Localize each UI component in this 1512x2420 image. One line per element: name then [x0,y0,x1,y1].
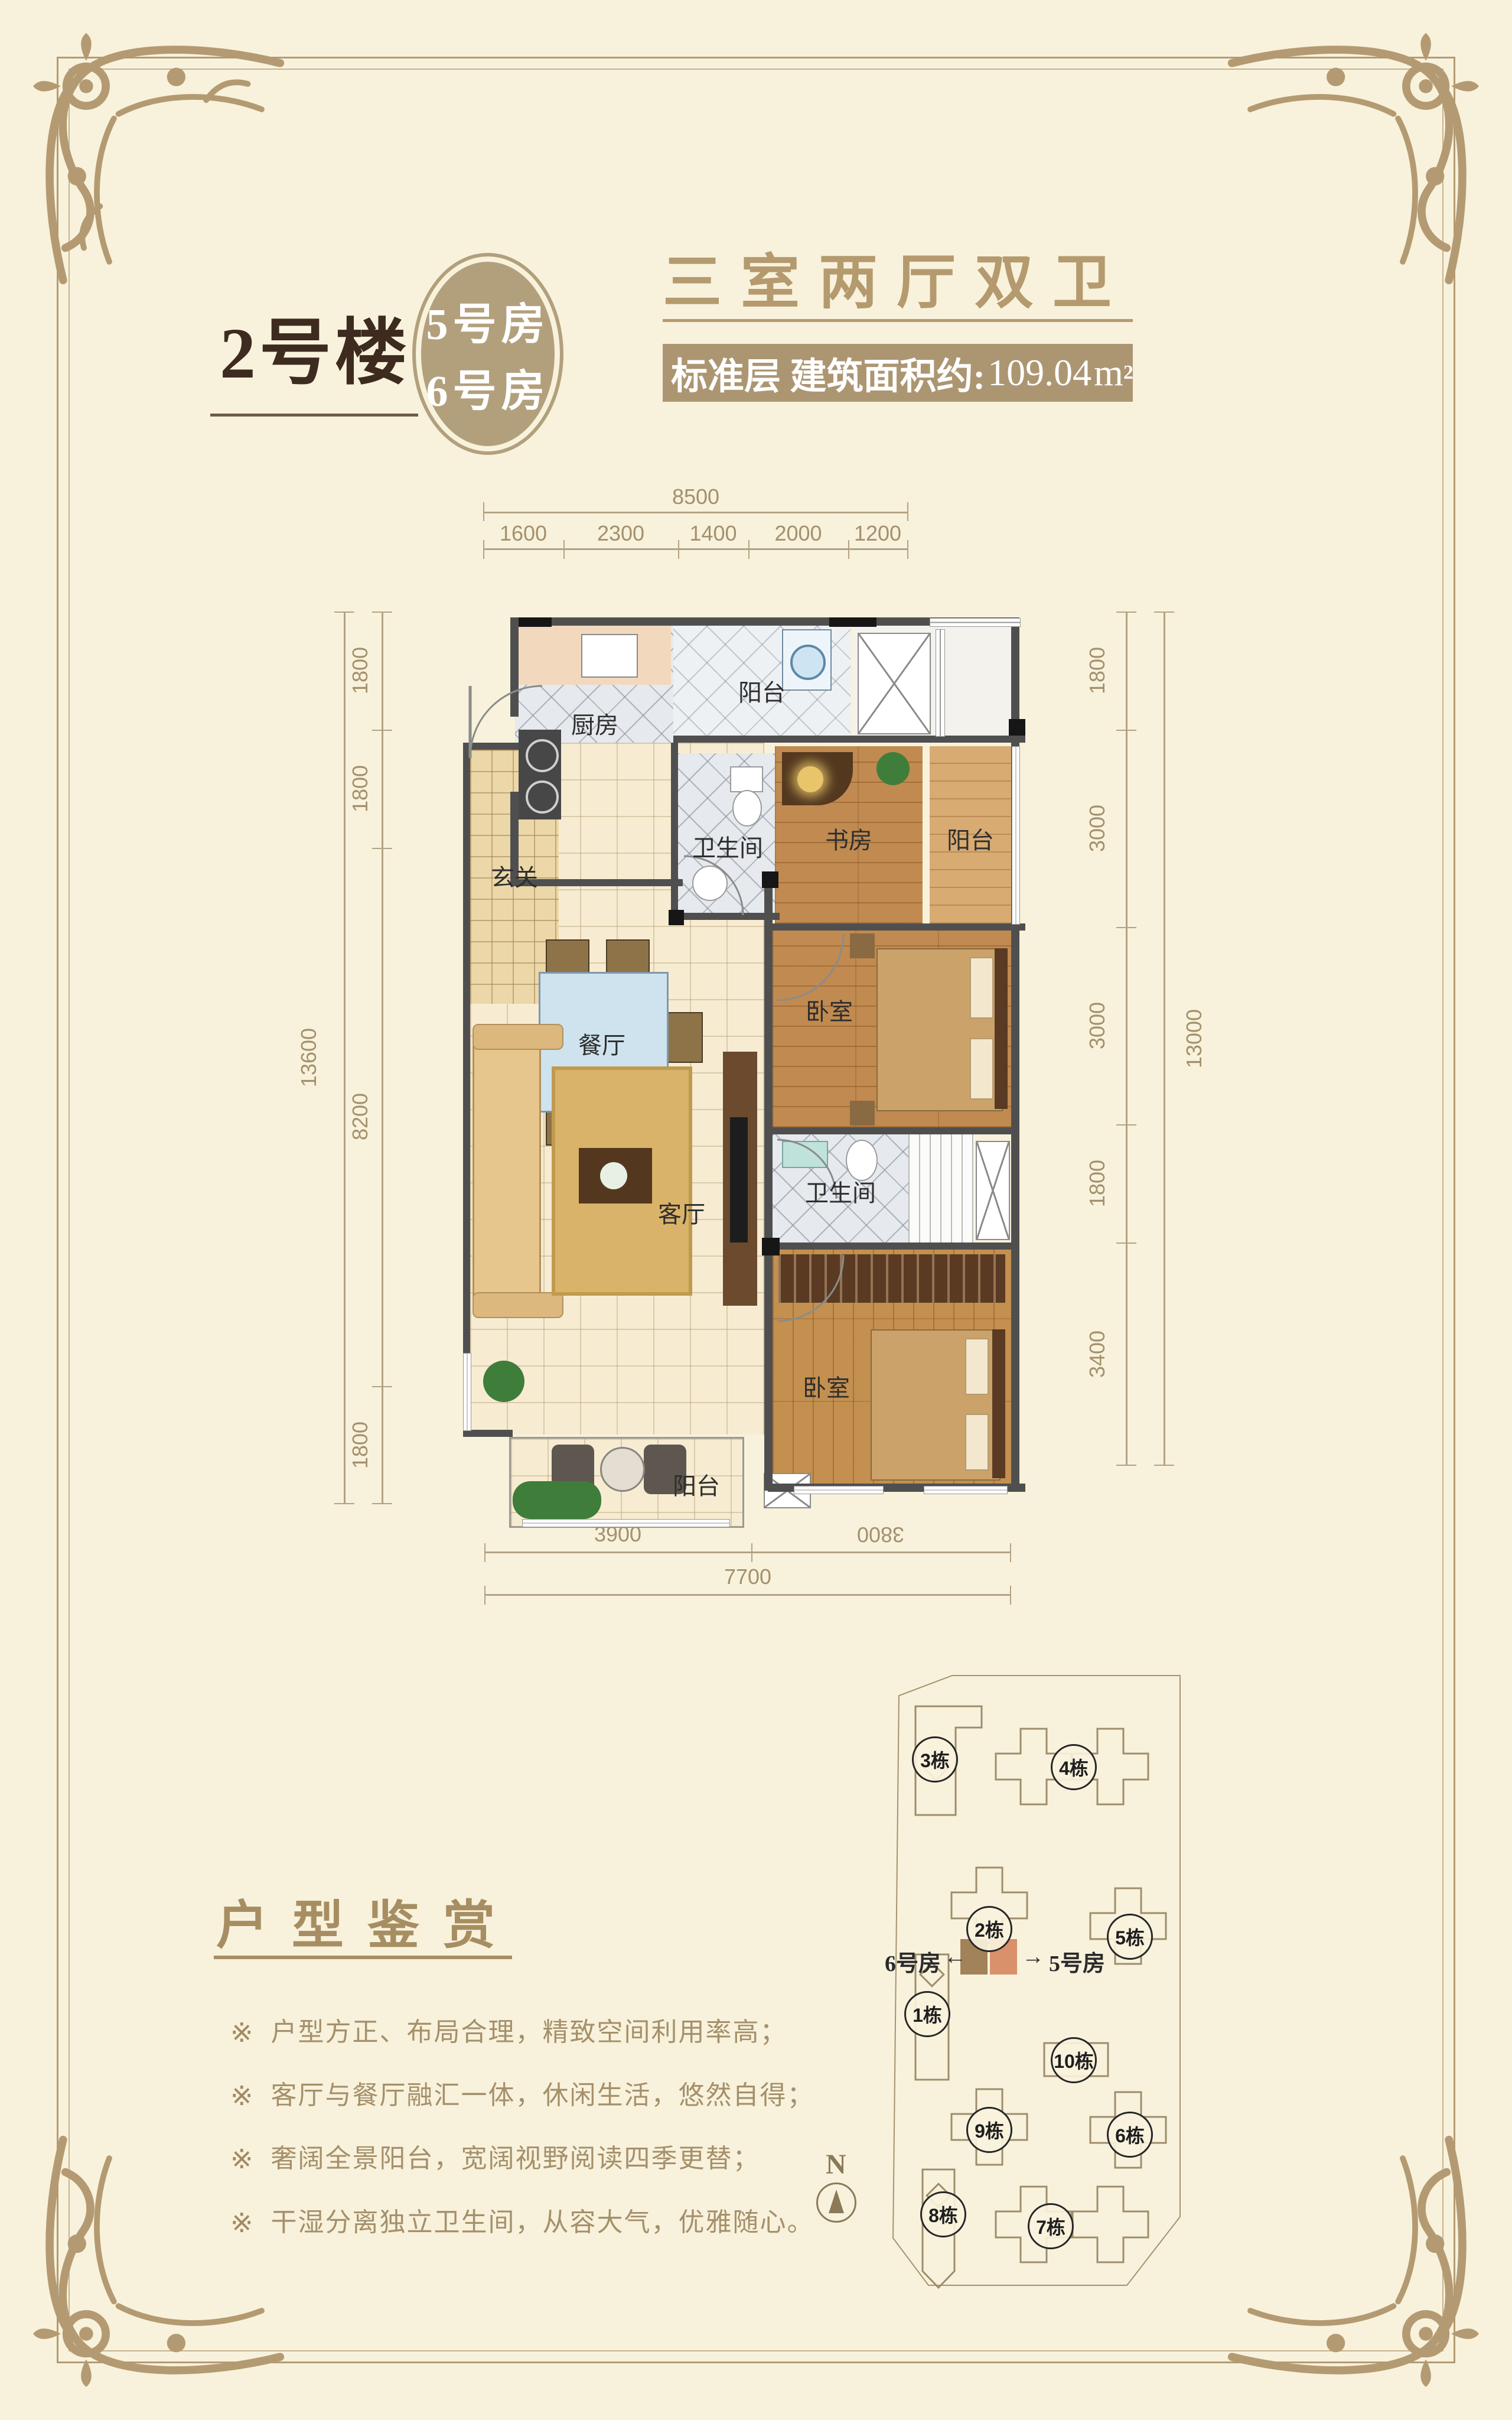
dim-right-seg: 3400 [1084,1310,1110,1398]
dim-tick [748,540,750,559]
site-building-7: 7栋 [1028,2203,1074,2249]
dim-tick [678,540,679,559]
dim-right-seg: 1800 [1084,1139,1110,1228]
room-label-balcony-top: 阳台 [673,674,850,708]
site-building-2: 2栋 [966,1906,1012,1952]
site-building-9: 9栋 [966,2107,1012,2153]
unit-number-badge: 5号房 6号房 [412,253,563,455]
plant [483,1361,524,1402]
dining-chair [606,939,650,976]
dim-top-seg: 2300 [563,521,678,546]
site-building-3: 3栋 [912,1736,958,1783]
dim-tick [1116,611,1136,613]
dim-line [484,1594,1011,1596]
dim-tick [334,611,354,613]
dim-tick [372,848,392,849]
kitchen-sink [581,634,638,678]
tv [730,1117,748,1242]
highlight-text: 奢阔全景阳台，宽阔视野阅读四季更替； [271,2146,760,2172]
dim-tick [334,1503,354,1504]
room-label-entry: 玄关 [476,858,553,893]
highlight-text: 户型方正、布局合理，精致空间利用率高； [271,2019,787,2045]
room-label-dining: 餐厅 [539,1026,665,1061]
pillow [970,957,993,1019]
room-label-study-balcony: 阳台 [930,821,1011,856]
dim-line [483,512,908,513]
room-label-balcony-bottom: 阳台 [652,1467,741,1501]
site-building-6: 6栋 [1107,2112,1153,2158]
unit-6-label: 6号房 [885,1945,941,1977]
nightstand [850,933,875,958]
dim-tick [1116,730,1136,731]
floorplan-poster: { "colors": { "background": "#f8f2dc", "… [0,0,1512,2420]
dim-bottom-seg: 3800 [751,1522,1010,1547]
bullet-icon: ※ [230,2146,253,2173]
badge-unit-6: 6号房 [426,356,550,419]
site-building-1: 1栋 [904,1991,950,2037]
dim-tick [907,502,908,521]
dim-left-seg: 8200 [347,1072,373,1161]
dim-line [382,611,383,1504]
room-label-study: 书房 [775,821,923,856]
badge-unit-5: 5号房 [426,289,550,352]
compass-arrow-icon [829,2190,844,2213]
dim-tick [1116,927,1136,928]
dining-chair [666,1012,703,1063]
door-arc [775,1253,846,1323]
toilet [732,790,762,827]
title-divider [663,319,1133,322]
dim-line [1164,611,1165,1466]
dim-line [1126,611,1128,1466]
dim-right-seg: 1800 [1084,626,1110,715]
dim-line [484,1551,1011,1553]
corner-flourish-icon [33,33,287,287]
site-map: 3栋 4栋 2栋 5栋 1栋 10栋 9栋 6栋 8栋 7栋 6号房 ← → 5… [856,1672,1211,2310]
wardrobe [908,1134,975,1242]
floor-plan: 厨房 阳台 玄关 卫生间 书房 阳台 餐厅 卧室 客厅 卫生间 卧室 阳台 [463,617,1025,1539]
sofa [472,1038,541,1305]
compass-icon [816,2182,856,2223]
plant [876,752,910,785]
dim-tick [1154,611,1174,613]
sofa-arm [472,1292,563,1318]
highlight-text: 干湿分离独立卫生间，从容大气，优雅随心。 [271,2210,814,2236]
highlights-underline [214,1956,512,1959]
compass-north-label: N [826,2148,846,2181]
dim-top-seg: 2000 [748,521,848,546]
building-title-underline [210,414,418,417]
highlight-item: ※ 干湿分离独立卫生间，从容大气，优雅随心。 [230,2210,814,2237]
dim-right-seg: 3000 [1084,784,1110,873]
table-decor [600,1162,627,1189]
highlight-text: 客厅与餐厅融汇一体，休闲生活，悠然自得； [271,2083,814,2109]
dim-tick [372,730,392,731]
desk-lamp [797,766,823,792]
dim-tick [1154,1465,1174,1466]
area-prefix: 标准层 建筑面积约: [671,346,985,399]
site-building-8: 8栋 [920,2191,966,2237]
bullet-icon: ※ [230,2083,253,2110]
highlight-item: ※ 客厅与餐厅融汇一体，休闲生活，悠然自得； [230,2083,814,2110]
plants [513,1481,601,1519]
pillow [965,1414,989,1471]
dim-bottom-total: 7700 [484,1564,1011,1589]
dim-top-seg: 1600 [483,521,563,546]
bullet-icon: ※ [230,2019,253,2047]
headboard [992,1329,1005,1478]
room-label-bedroom-bottom: 卧室 [782,1369,871,1403]
dim-left-total: 13600 [296,1013,322,1102]
pillow [965,1338,989,1395]
pillow [970,1038,993,1100]
dim-tick [1116,1465,1136,1466]
highlights-title: 户型鉴赏 [216,1884,519,1959]
ac-platform [976,1141,1010,1240]
room-label-bath-mid: 卫生间 [773,1174,908,1208]
headboard [995,948,1008,1109]
bullet-icon: ※ [230,2210,253,2237]
arrow-left-icon: ← [944,1944,966,1970]
highlight-item: ※ 奢阔全景阳台，宽阔视野阅读四季更替； [230,2146,760,2173]
dim-top-total: 8500 [483,484,908,509]
dim-tick [372,1386,392,1387]
site-building-5: 5栋 [1107,1914,1153,1960]
dim-line [344,611,346,1504]
nightstand [850,1101,875,1126]
stove-burner [526,780,559,814]
arrow-right-icon: → [1022,1944,1044,1970]
room-label-kitchen: 厨房 [515,706,674,740]
dim-left-seg: 1800 [347,626,373,715]
room-label-bedroom-mid: 卧室 [785,993,874,1027]
unit-5-label: 5号房 [1049,1945,1105,1977]
dim-top-seg: 1400 [678,521,748,546]
window [936,629,945,737]
dining-chair [546,939,589,976]
dim-tick [907,540,908,559]
corner-flourish-icon [1225,2133,1479,2387]
ac-platform [858,633,931,734]
dim-tick [1010,1543,1011,1562]
dim-left-seg: 1800 [347,1401,373,1489]
room-label-living: 客厅 [637,1195,726,1229]
dim-tick [372,1503,392,1504]
area-value: 109.04 [988,351,1091,395]
dim-tick [1116,1124,1136,1126]
corner-flourish-icon [1225,33,1479,287]
door-arc [682,854,747,919]
dim-line [483,548,908,550]
dim-tick [848,540,849,559]
dim-tick [483,502,484,521]
balcony-table [600,1447,645,1492]
dim-right-seg: 3000 [1084,981,1110,1070]
dim-top-seg: 1200 [848,521,907,546]
site-building-10: 10栋 [1051,2037,1097,2083]
layout-type-title: 三室两厅双卫 [663,234,1130,320]
toilet-tank [730,766,763,792]
area-unit: m [1094,351,1123,395]
area-info-box: 标准层 建筑面积约:109.04m2 [663,344,1133,402]
site-building-4: 4栋 [1051,1744,1097,1790]
dim-tick [483,540,484,559]
area-sup: 2 [1123,362,1133,384]
dim-tick [563,540,565,559]
room-label-bath-top: 卫生间 [678,829,777,863]
highlight-item: ※ 户型方正、布局合理，精致空间利用率高； [230,2019,787,2047]
building-number-title: 2号楼 [220,294,410,399]
dim-left-seg: 1800 [347,744,373,833]
dim-tick [1116,1242,1136,1244]
dim-right-total: 13000 [1181,994,1207,1083]
dim-tick [372,611,392,613]
door-arc [775,932,846,1003]
